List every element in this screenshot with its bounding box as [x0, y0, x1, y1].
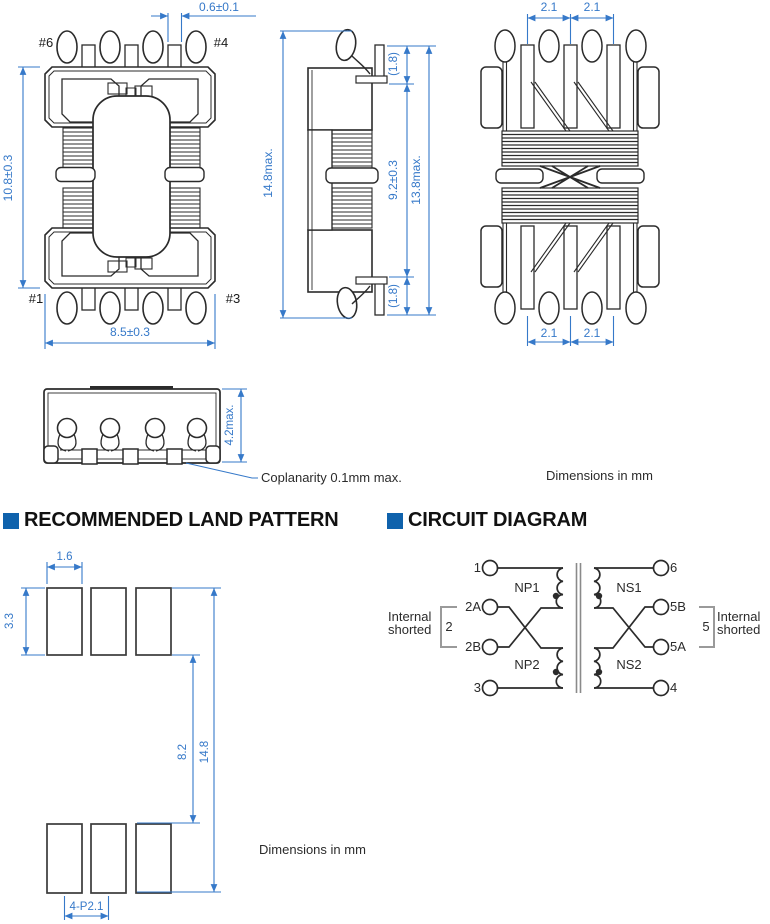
terminal-label-5b: 5B	[670, 599, 686, 614]
terminal-label-3: 3	[474, 680, 481, 695]
dim-tab-width: 0.6±0.1	[199, 0, 239, 14]
pin-end	[101, 419, 120, 438]
winding-coil-ns2	[594, 648, 601, 688]
dim-row-gap: 8.2	[177, 744, 189, 760]
coplanarity-leader	[186, 463, 258, 478]
land-pad	[136, 824, 171, 893]
pin-label-4: #4	[214, 35, 228, 50]
terminal-circle-2a	[483, 600, 498, 615]
internal-shorted-right-line2: shorted	[717, 622, 760, 637]
land-pad	[47, 824, 82, 893]
pin-terminal	[334, 28, 358, 62]
terminal-circle-2b	[483, 640, 498, 655]
terminal-label-2a: 2A	[465, 599, 481, 614]
terminal-label-6: 6	[670, 560, 677, 575]
dim-pitch: 2.1	[541, 326, 558, 340]
winding-label-np2: NP2	[514, 657, 539, 672]
back-view-half	[481, 30, 659, 131]
polarity-dot	[553, 669, 559, 675]
terminal-circle-5a	[654, 640, 669, 655]
land-pattern-header: RECOMMENDED LAND PATTERN	[3, 509, 338, 532]
pin-end	[188, 419, 207, 438]
datasheet-page: RECOMMENDED LAND PATTERN CIRCUIT DIAGRAM	[0, 0, 770, 924]
technical-drawing: 10.8±0.3 8.5±0.3 0.6±0.1 #6 #4 #1 #3	[0, 0, 770, 924]
polarity-dot	[596, 593, 602, 599]
pin-terminal	[186, 31, 206, 63]
primary-crossover	[497, 607, 563, 648]
foot-pad	[82, 449, 97, 464]
center-core	[93, 96, 170, 257]
winding-label-ns1: NS1	[616, 580, 641, 595]
dim-pitch: 2.1	[541, 0, 558, 14]
foot-pad	[123, 449, 138, 464]
pin-terminal	[57, 31, 77, 63]
pin-label-3: #3	[226, 291, 240, 306]
pin-terminal	[582, 30, 602, 62]
section-bullet-icon	[387, 513, 403, 529]
foot-pad	[167, 449, 182, 464]
coplanarity-note: Coplanarity 0.1mm max.	[261, 470, 402, 485]
pin-terminal	[143, 31, 163, 63]
terminal-circle-4	[654, 681, 669, 696]
dim-pitch: 2.1	[584, 0, 601, 14]
center-tab	[168, 45, 181, 69]
dim-body: 9.2±0.3	[386, 160, 400, 200]
shorted-pin-label-5: 5	[702, 619, 709, 634]
winding-coil-ns1	[594, 568, 601, 608]
terminal-circle-6	[654, 561, 669, 576]
polarity-dot	[553, 593, 559, 599]
circuit-diagram-drawing	[441, 561, 714, 696]
crossover-winding	[540, 166, 600, 188]
winding-label-ns2: NS2	[616, 657, 641, 672]
circuit-diagram-title: CIRCUIT DIAGRAM	[408, 509, 587, 532]
top-view-drawing	[45, 31, 215, 324]
pin-end	[146, 419, 165, 438]
shorted-pin-label-2: 2	[445, 619, 452, 634]
dim-mounted-height: 4.2max.	[224, 405, 236, 446]
side-tab	[326, 168, 378, 183]
back-view-drawing	[481, 30, 659, 324]
dim-pitch: 2.1	[584, 326, 601, 340]
dim-pad-pitch: 4-P2.1	[70, 901, 104, 913]
winding-label-np1: NP1	[514, 580, 539, 595]
dim-pattern-height: 14.8	[199, 741, 211, 763]
terminal-label-2b: 2B	[465, 639, 481, 654]
terminal-label-5a: 5A	[670, 639, 686, 654]
circuit-diagram-header: CIRCUIT DIAGRAM	[387, 509, 587, 532]
pin-end	[58, 419, 77, 438]
land-pad	[91, 824, 126, 893]
pin-label-1: #1	[29, 291, 43, 306]
dim-lead-bottom: (1.8)	[388, 284, 400, 308]
side-view-drawing	[308, 28, 387, 320]
side-tab	[165, 168, 204, 182]
winding-coil-np2	[556, 648, 563, 688]
land-pattern-title: RECOMMENDED LAND PATTERN	[24, 509, 338, 532]
side-tab	[496, 169, 543, 183]
terminal-circle-1	[483, 561, 498, 576]
terminal-label-1: 1	[474, 560, 481, 575]
terminal-label-4: 4	[670, 680, 677, 695]
dim-lead-top: (1.8)	[388, 52, 400, 76]
terminal-circle-3	[483, 681, 498, 696]
section-bullet-icon	[3, 513, 19, 529]
center-tab	[125, 45, 138, 69]
pin-label-6: #6	[39, 35, 53, 50]
land-pad	[91, 588, 126, 655]
pin-terminal	[539, 30, 559, 62]
front-view-drawing	[44, 386, 220, 464]
land-pad	[136, 588, 171, 655]
transformer-core	[577, 563, 581, 693]
terminal-circle-5b	[654, 600, 669, 615]
dim-total-height: 14.8max.	[261, 148, 275, 197]
land-pad	[47, 588, 82, 655]
dim-with-leads: 13.8max.	[409, 155, 423, 204]
dim-body-height: 10.8±0.3	[1, 154, 15, 201]
side-tab	[597, 169, 644, 183]
pin-terminal	[626, 30, 646, 62]
land-pattern-drawing	[47, 588, 171, 893]
pin-terminal	[100, 31, 120, 63]
internal-shorted-left-line2: shorted	[388, 622, 431, 637]
dim-body-width: 8.5±0.3	[110, 325, 150, 339]
pin-terminal	[495, 30, 515, 62]
dim-pad-height: 3.3	[4, 613, 16, 629]
winding-coil-np1	[556, 568, 563, 608]
dimensions-note: Dimensions in mm	[546, 468, 653, 483]
center-tab	[82, 45, 95, 69]
secondary-crossover	[594, 607, 654, 648]
dimensions-note: Dimensions in mm	[259, 842, 366, 857]
side-tab	[56, 168, 95, 182]
dim-pad-width: 1.6	[57, 551, 73, 563]
polarity-dot	[596, 669, 602, 675]
